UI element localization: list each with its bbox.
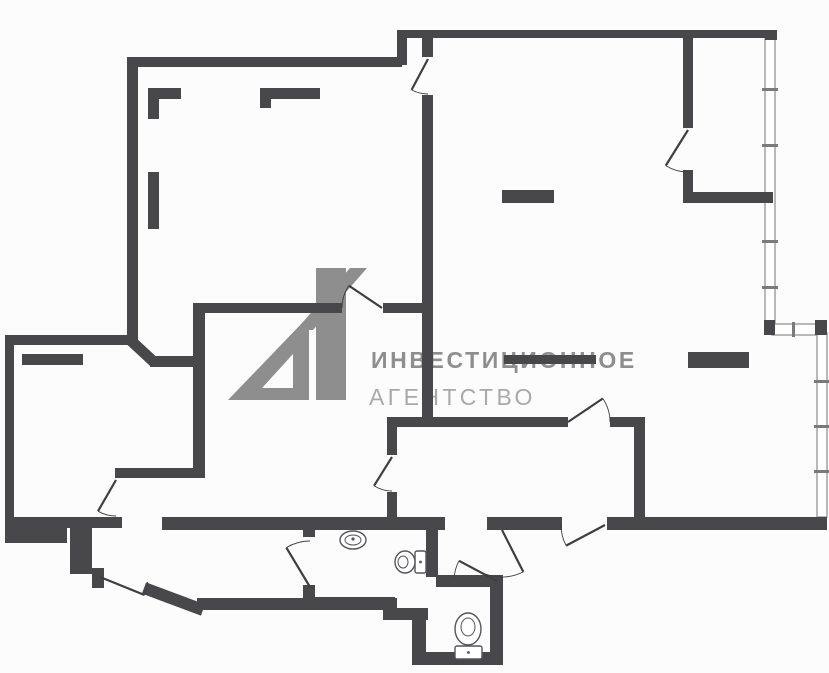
glazing-tick: [762, 286, 778, 289]
wall-segment: [397, 30, 775, 38]
wall-segment: [193, 303, 205, 478]
toilet-icon-button: [419, 561, 422, 564]
wall-mark: [502, 190, 554, 203]
wall-segment: [193, 303, 342, 313]
wall-segment: [683, 38, 693, 128]
door-arc: [286, 541, 310, 548]
door-leaf: [568, 399, 603, 422]
wall-segment: [607, 517, 827, 530]
wall-segment: [303, 585, 315, 603]
wall-segment: [422, 30, 433, 57]
door-arc: [454, 561, 459, 578]
wall-mark: [148, 88, 181, 99]
door-arc: [412, 90, 428, 94]
wall-mark: [148, 172, 159, 229]
glazing-tick: [814, 425, 829, 428]
wall-segment: [130, 57, 402, 67]
wall-segment: [765, 30, 777, 40]
glazing-tick: [762, 88, 778, 91]
wall-mark: [504, 355, 596, 364]
door-leaf: [98, 480, 116, 511]
glazing-joint: [815, 320, 827, 335]
wall-mark: [260, 99, 271, 108]
wall-segment: [683, 192, 773, 203]
wall-segment: [5, 335, 138, 345]
wall-segment: [303, 597, 395, 610]
window-glazing: [762, 38, 829, 517]
wall-segment: [426, 530, 438, 577]
door-leaf: [566, 525, 605, 546]
wall-segment: [387, 492, 397, 530]
wall-mark: [148, 99, 159, 119]
door-leaf: [349, 286, 382, 308]
wall-segment: [387, 417, 568, 427]
door-leaf: [374, 457, 392, 486]
door-arc: [98, 511, 116, 516]
wall-segment: [5, 335, 14, 531]
wall-segment: [383, 303, 422, 313]
wall-segment-diagonal: [127, 337, 155, 363]
floor-plan: А1 ИНВЕСТИЦИОННОЕ АГЕНТСТВО: [0, 0, 829, 673]
wall-mark: [260, 88, 320, 99]
wall-mark: [688, 352, 749, 368]
wall-segment: [490, 575, 503, 665]
wall-segment: [303, 517, 315, 537]
door-leaf: [100, 577, 145, 595]
wall-segment: [115, 468, 205, 478]
wall-segment: [487, 517, 562, 530]
door-leaf: [412, 59, 428, 90]
glazing-segment: [765, 38, 775, 324]
wall-segment-diagonal: [144, 588, 203, 610]
wall-segment: [422, 95, 433, 422]
glazing-joint: [764, 320, 775, 335]
door-arc: [374, 486, 392, 491]
glazing-tick: [762, 144, 778, 147]
a1-logo-digit-1: [316, 268, 346, 400]
a1-logo: [228, 268, 367, 400]
wall-segment: [5, 517, 67, 543]
wall-segment: [634, 417, 645, 530]
glazing-tick: [814, 380, 829, 383]
door-arc: [603, 399, 610, 423]
a1-logo-letter-a: [228, 321, 309, 400]
bathroom-fixtures: [340, 531, 482, 659]
door-leaf: [666, 130, 688, 166]
glazing-tick: [814, 470, 829, 473]
sink-drain: [351, 537, 354, 540]
door-leaf: [502, 530, 523, 572]
door-arc: [486, 572, 523, 577]
glazing-tick: [792, 322, 795, 337]
wall-segment: [70, 528, 92, 574]
door-leaf: [286, 548, 310, 587]
toilet-icon-button: [467, 651, 470, 654]
glazing-tick: [762, 240, 778, 243]
wall-segment: [387, 417, 397, 455]
floor-plan-svg: [0, 0, 829, 673]
wall-segment: [127, 57, 138, 338]
wall-segment: [150, 356, 200, 367]
wall-mark: [22, 354, 83, 365]
